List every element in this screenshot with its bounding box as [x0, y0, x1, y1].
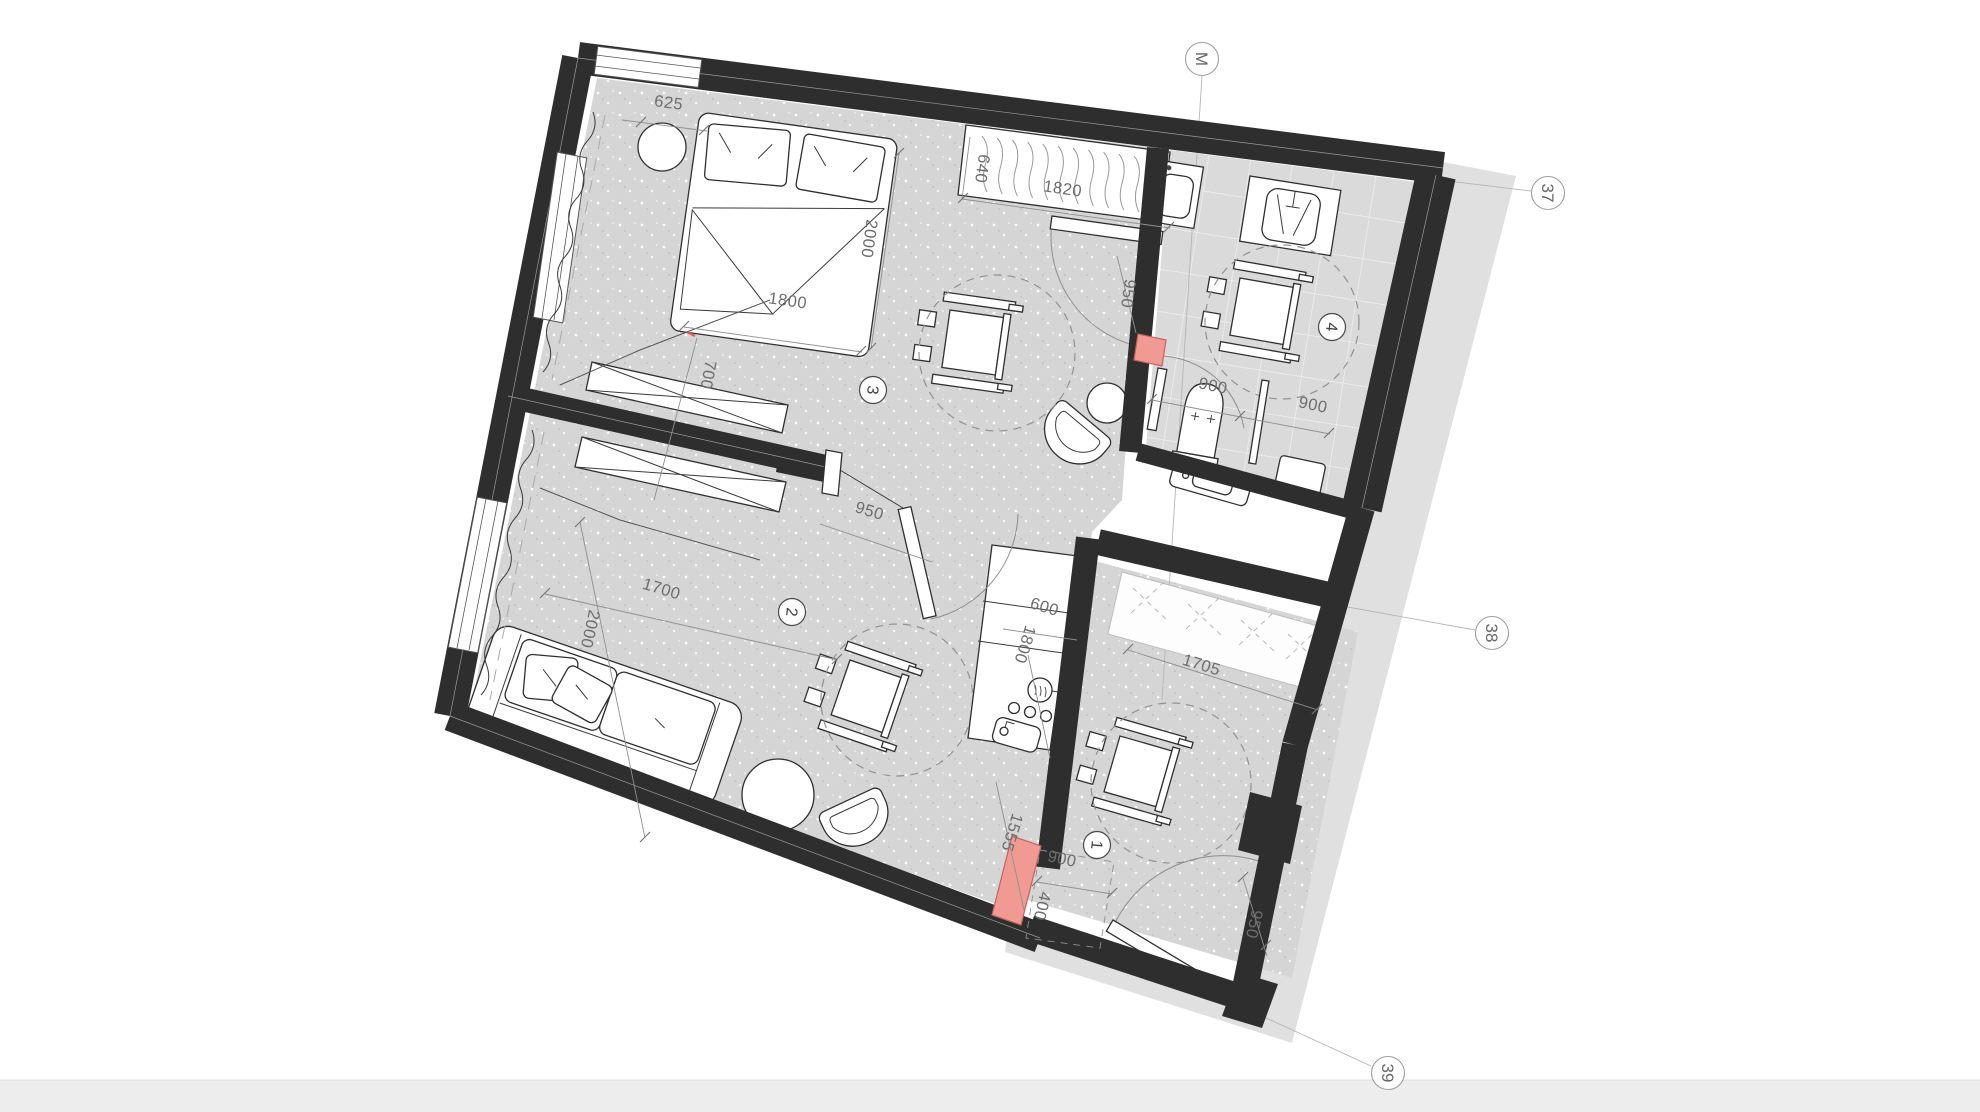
room-number-entry: 1	[1087, 840, 1105, 850]
grid-marker-37: 37	[1538, 184, 1557, 203]
bathroom-door-highlight	[1134, 334, 1166, 366]
grid-marker-38: 38	[1482, 624, 1501, 643]
bathroom-sink	[1240, 176, 1341, 256]
side-table-bedroom	[1087, 383, 1127, 423]
grid-marker-m: M	[1192, 52, 1211, 66]
room-number-bedroom: 3	[863, 385, 881, 395]
grid-marker-39: 39	[1378, 1064, 1397, 1083]
floor-plan-svg: 625 640 1820 1800 2000 700 950 950 1700 …	[0, 0, 1980, 1112]
door-post	[822, 450, 842, 496]
room-number-bathroom: 4	[1322, 322, 1340, 332]
hob	[1028, 678, 1052, 702]
bedside-table	[638, 123, 686, 171]
page-bottom-strip	[0, 1080, 1980, 1112]
room-number-living: 2	[782, 607, 800, 617]
